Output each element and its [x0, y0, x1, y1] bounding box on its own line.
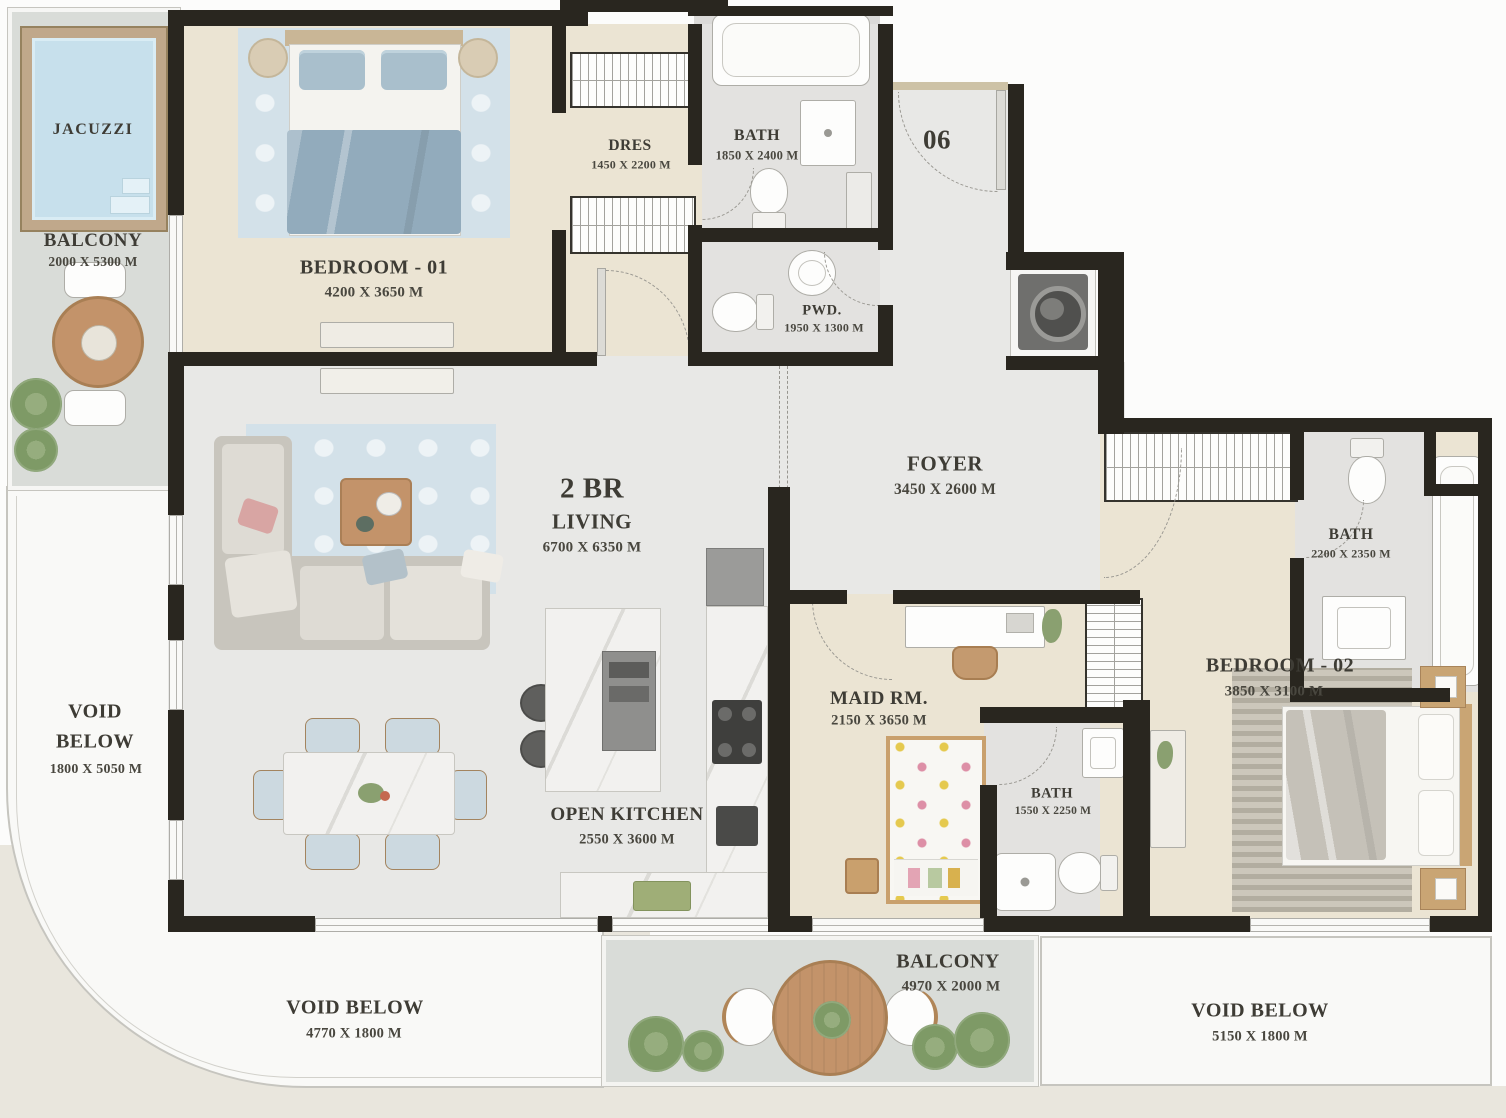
kitchen-appliance-icon [716, 806, 758, 846]
dining-chair-icon [385, 833, 440, 870]
void-dimension: 1800 X 5050 M [50, 762, 142, 778]
room-dimension: 2200 X 2350 M [1311, 547, 1391, 562]
wall-segment [1290, 432, 1304, 500]
vanity-counter-icon [846, 172, 872, 234]
wall-segment [702, 228, 880, 242]
window [169, 515, 183, 585]
wall-segment [168, 10, 184, 215]
room-label: LIVING [552, 510, 632, 535]
sink-icon [1082, 728, 1124, 778]
kitchen-counter-icon [560, 872, 768, 918]
plant-icon [10, 378, 62, 430]
wall-segment [1140, 916, 1250, 932]
room-label: BATH [734, 127, 780, 145]
double-bed-icon [285, 30, 463, 236]
unit-number-label: 06 [923, 125, 951, 156]
tv-console-icon [320, 368, 454, 394]
washing-machine-icon [1018, 274, 1088, 350]
desk-icon [905, 606, 1045, 648]
wall-segment [1100, 418, 1492, 432]
room-dimension: 1550 X 2250 M [1015, 805, 1091, 817]
room-label: BEDROOM - 02 [1206, 655, 1354, 678]
coffee-table-icon [340, 478, 412, 546]
wall-segment [688, 352, 882, 366]
toilet-icon [748, 168, 788, 232]
room-dimension: 2550 X 3600 M [579, 832, 675, 849]
room-dimension: 3850 X 3100 M [1225, 684, 1324, 701]
wall-segment [1430, 916, 1492, 932]
void-label: BELOW [56, 731, 134, 754]
window [169, 820, 183, 880]
wall-segment [984, 916, 1140, 932]
room-label: JACUZZI [53, 121, 134, 139]
stool-icon [845, 858, 879, 894]
dining-chair-icon [385, 718, 440, 755]
vanity-sink-icon [1322, 596, 1406, 660]
kitchen-island-icon [545, 608, 661, 792]
wall-segment [552, 24, 566, 113]
void-label: VOID BELOW [286, 997, 423, 1020]
room-dimension: 4970 X 2000 M [902, 979, 1001, 996]
room-label: FOYER [907, 452, 983, 477]
room-label: MAID RM. [830, 688, 928, 710]
dining-chair-icon [305, 718, 360, 755]
nightstand-icon [1420, 868, 1466, 910]
bedside-rug-icon [248, 38, 288, 78]
bathtub-icon [712, 14, 870, 86]
balcony-chair-icon [722, 988, 776, 1046]
void-label: VOID [68, 701, 122, 724]
room-dimension: 4200 X 3650 M [325, 285, 424, 302]
room-dimension: 2000 X 5300 M [48, 254, 137, 270]
wardrobe-icon [570, 196, 696, 254]
wall-segment [1424, 432, 1436, 492]
wall-segment [878, 305, 893, 366]
wall-segment [598, 916, 612, 932]
dining-table-icon [283, 752, 455, 835]
room-dimension: 3450 X 2600 M [894, 481, 996, 499]
plant-icon [628, 1016, 684, 1072]
wall-segment [1008, 84, 1024, 265]
wall-segment [552, 230, 566, 366]
window [1250, 918, 1430, 932]
round-table-icon [772, 960, 888, 1076]
door-leaf [597, 268, 606, 356]
floor-plan: JACUZZI BALCONY 2000 X 5300 M BEDROOM - … [0, 0, 1506, 1118]
wall-segment [168, 710, 184, 820]
shower-icon [994, 853, 1056, 911]
room-label: DRES [608, 137, 651, 155]
plant-icon [682, 1030, 724, 1072]
toilet-icon [1058, 850, 1120, 894]
room-label: OPEN KITCHEN [550, 804, 703, 826]
single-bed-icon [886, 736, 986, 904]
window [169, 215, 183, 355]
window [169, 640, 183, 710]
wall-segment [168, 916, 315, 932]
balcony-chair-icon [64, 390, 126, 426]
room-dimension: 1450 X 2200 M [591, 158, 671, 173]
wall-segment [1006, 356, 1098, 370]
room-label: BALCONY [44, 230, 143, 252]
room-dimension: 1850 X 2400 M [716, 149, 799, 164]
room-dimension: 6700 X 6350 M [543, 540, 642, 557]
double-bed-icon [1282, 704, 1472, 866]
toilet-icon [712, 290, 776, 332]
wall-segment [1424, 484, 1492, 496]
wall-segment [878, 24, 893, 250]
tv-console-icon [320, 322, 454, 348]
wardrobe-icon [1085, 598, 1143, 712]
void-dimension: 4770 X 1800 M [306, 1026, 402, 1043]
void-dimension: 5150 X 1800 M [1212, 1029, 1308, 1046]
room-label: BATH [1329, 526, 1374, 544]
shower-icon [800, 100, 856, 166]
wall-segment [790, 590, 847, 604]
window [315, 918, 598, 932]
stove-icon [712, 700, 762, 764]
wardrobe-icon [570, 52, 696, 108]
dining-chair-icon [450, 770, 487, 820]
wall-segment [168, 355, 184, 515]
bedside-rug-icon [458, 38, 498, 78]
plant-icon [954, 1012, 1010, 1068]
toilet-icon [1340, 438, 1392, 506]
wall-segment [1290, 558, 1304, 702]
window [812, 918, 984, 932]
window [612, 918, 780, 932]
wall-segment [980, 785, 997, 932]
dining-chair-icon [305, 833, 360, 870]
room-dimension: 2150 X 3650 M [831, 713, 927, 730]
wall-segment [980, 707, 1137, 723]
wall-segment [768, 487, 790, 932]
wall-segment [168, 352, 597, 366]
room-label: BEDROOM - 01 [300, 257, 448, 280]
outside-ground-strip [0, 1086, 1506, 1118]
wall-segment [688, 225, 702, 366]
wall-segment [1098, 252, 1124, 434]
unit-type-label: 2 BR [560, 473, 624, 506]
foyer-floor [779, 362, 1125, 596]
plant-icon [14, 428, 58, 472]
wall-segment [168, 585, 184, 640]
room-label: BATH [1031, 786, 1073, 803]
entry-threshold [893, 82, 1008, 90]
wall-segment [893, 590, 1140, 604]
wall-segment [688, 24, 702, 165]
desk-chair-icon [952, 646, 998, 680]
wall-segment [688, 6, 893, 16]
room-label: PWD. [802, 303, 841, 320]
room-label: BALCONY [896, 951, 1000, 974]
wall-segment [1123, 700, 1150, 932]
dresser-icon [1150, 730, 1186, 848]
wall-segment [980, 707, 997, 723]
room-dimension: 1950 X 1300 M [784, 321, 864, 336]
void-label: VOID BELOW [1191, 1000, 1328, 1023]
round-table-icon [52, 296, 144, 388]
wall-segment [168, 10, 588, 26]
plant-icon [912, 1024, 958, 1070]
fridge-icon [706, 548, 764, 606]
